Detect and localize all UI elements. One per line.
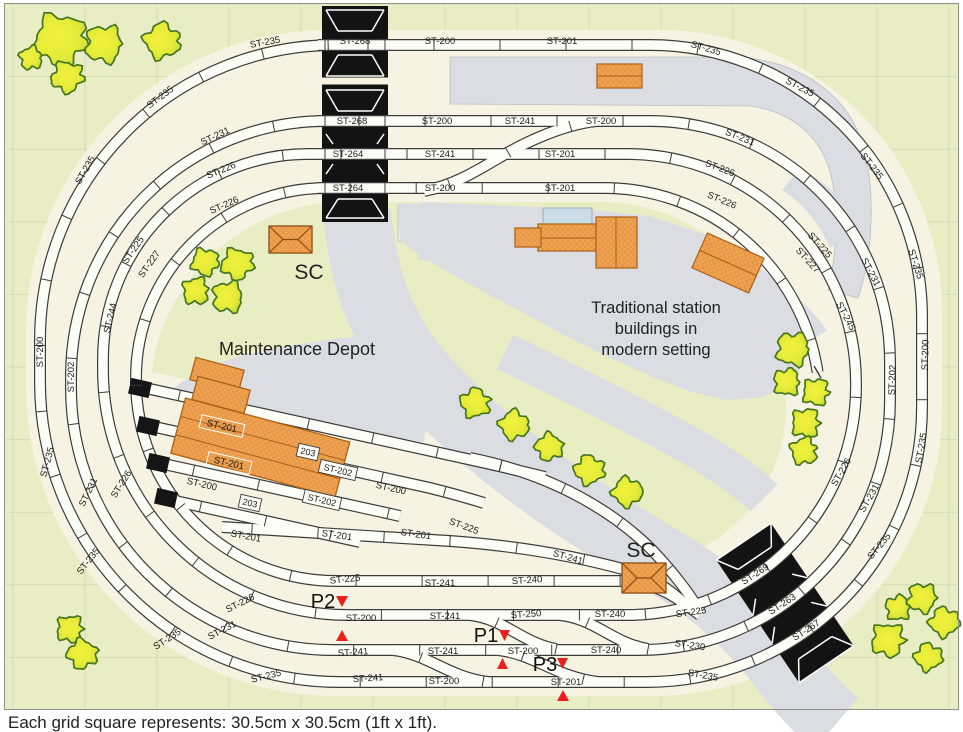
svg-text:ST-241: ST-241: [425, 578, 456, 589]
svg-text:SC: SC: [294, 261, 323, 284]
svg-text:ST-241: ST-241: [337, 646, 368, 659]
svg-text:modern setting: modern setting: [601, 341, 710, 359]
svg-text:ST-240: ST-240: [511, 574, 542, 587]
svg-text:ST-240: ST-240: [595, 609, 626, 620]
svg-text:buildings in: buildings in: [615, 320, 698, 338]
svg-text:ST-240: ST-240: [591, 645, 622, 656]
svg-text:ST-241: ST-241: [505, 116, 536, 127]
svg-text:ST-268: ST-268: [337, 116, 368, 127]
svg-text:ST-200: ST-200: [35, 337, 46, 368]
svg-text:ST-250: ST-250: [510, 608, 541, 621]
svg-text:ST-264: ST-264: [333, 149, 364, 160]
svg-text:P1: P1: [474, 625, 498, 647]
svg-text:ST-201: ST-201: [547, 36, 578, 47]
svg-text:ST-264: ST-264: [333, 183, 364, 194]
svg-text:ST-201: ST-201: [545, 149, 576, 160]
svg-text:ST-200: ST-200: [422, 116, 453, 127]
svg-text:ST-268: ST-268: [340, 36, 371, 47]
svg-text:ST-241: ST-241: [425, 149, 456, 160]
svg-text:ST-200: ST-200: [425, 36, 456, 47]
svg-text:ST-200: ST-200: [346, 613, 377, 624]
svg-text:ST-202: ST-202: [66, 362, 77, 393]
svg-text:ST-202: ST-202: [887, 365, 899, 396]
svg-text:ST-200: ST-200: [586, 116, 617, 127]
svg-text:ST-241: ST-241: [428, 646, 459, 657]
svg-text:ST-241: ST-241: [352, 672, 383, 685]
svg-text:P2: P2: [311, 591, 335, 613]
svg-text:ST-200: ST-200: [425, 183, 456, 194]
svg-text:ST-201: ST-201: [551, 677, 582, 688]
svg-text:SC: SC: [626, 539, 655, 562]
svg-text:ST-241: ST-241: [430, 611, 461, 622]
svg-text:P3: P3: [533, 654, 557, 676]
svg-text:Maintenance Depot: Maintenance Depot: [219, 339, 375, 359]
svg-text:ST-201: ST-201: [545, 183, 576, 194]
svg-text:Each grid square represents: 3: Each grid square represents: 30.5cm x 30…: [8, 713, 437, 732]
svg-text:Traditional station: Traditional station: [591, 299, 721, 317]
svg-text:ST-200: ST-200: [920, 340, 932, 371]
svg-text:ST-200: ST-200: [429, 676, 460, 687]
